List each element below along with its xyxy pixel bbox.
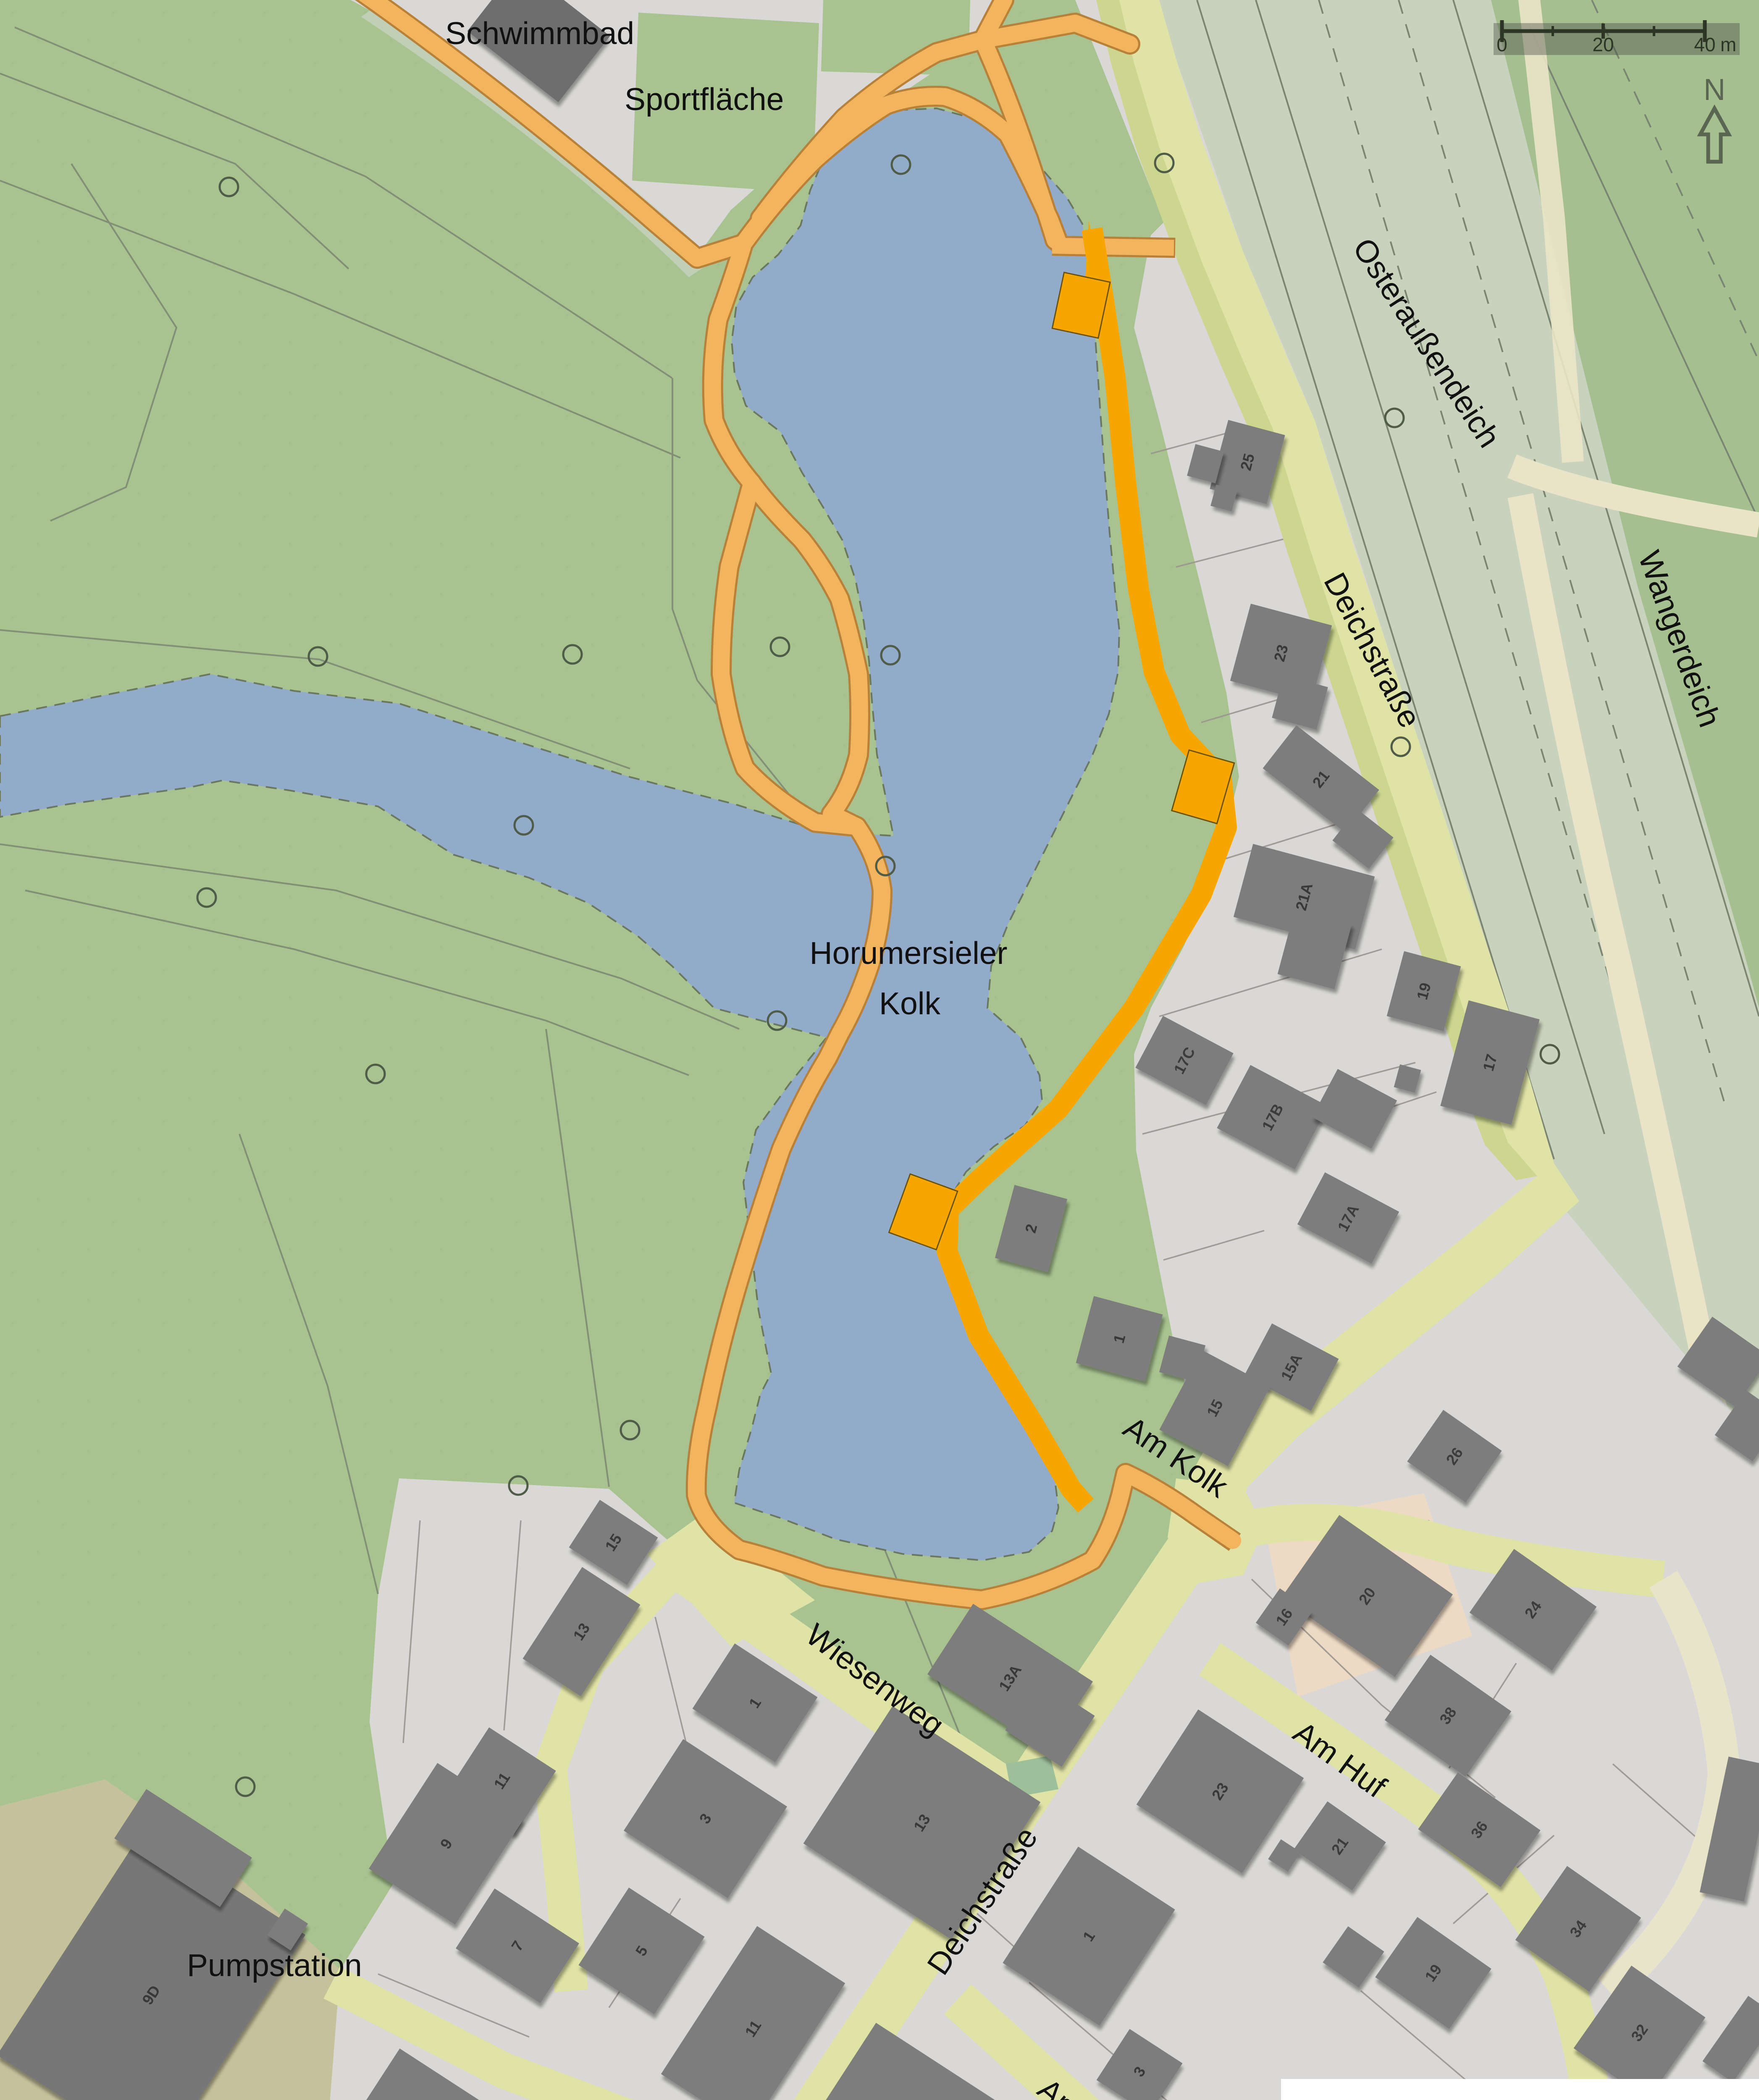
svg-text:m: m (1720, 34, 1736, 55)
svg-text:Sportfläche: Sportfläche (625, 81, 784, 117)
svg-text:0: 0 (1496, 34, 1507, 55)
svg-text:Kolk: Kolk (879, 986, 940, 1021)
svg-text:20: 20 (1592, 34, 1614, 55)
svg-text:N: N (1704, 73, 1725, 107)
svg-text:Horumersieler: Horumersieler (810, 935, 1008, 971)
svg-text:Pumpstation: Pumpstation (187, 1948, 362, 1983)
svg-text:40: 40 (1694, 34, 1715, 55)
svg-text:Schwimmbad: Schwimmbad (445, 16, 634, 51)
